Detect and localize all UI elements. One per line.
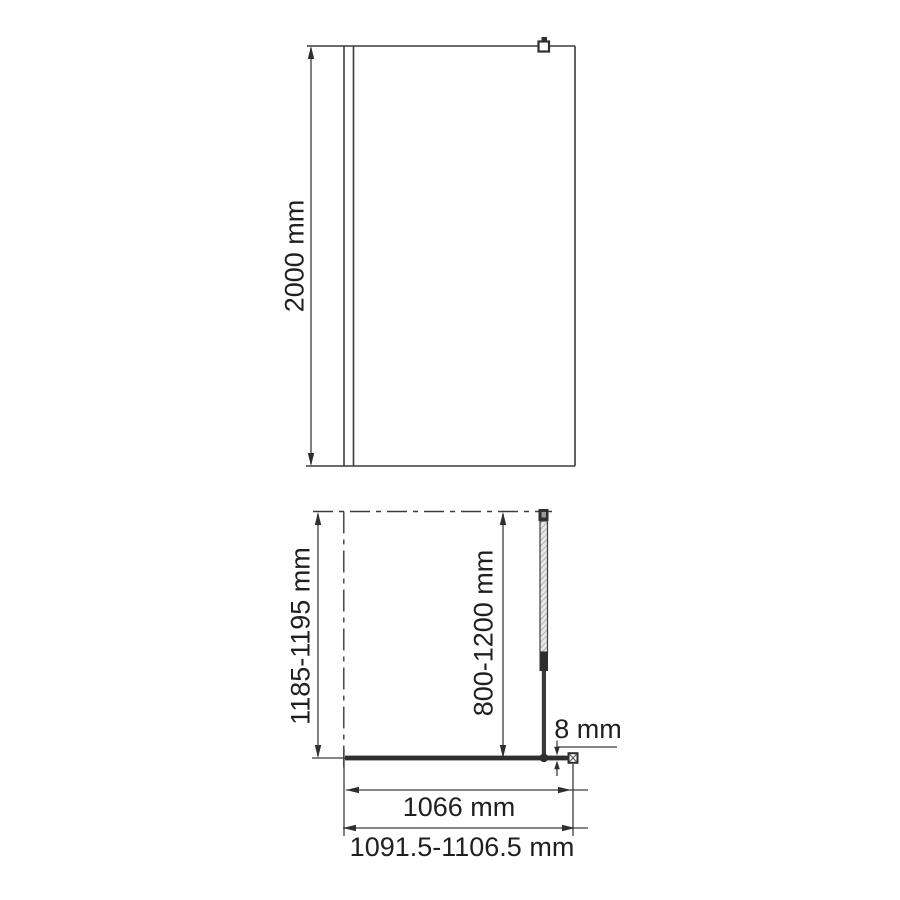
bar-clamp [540,652,549,671]
bar-outer-tube [540,521,548,652]
arrow-left-icon [343,825,356,831]
arrow-left-icon [346,787,359,793]
support-bar-plan [539,509,549,762]
bar-wall-bracket-inner [542,512,547,518]
arrow-up-icon [554,761,560,770]
overall-width-label: 1091.5-1106.5 mm [350,832,575,862]
support-bar-dimension: 800-1200 mm [468,512,506,758]
height-dimension: 2000 mm [279,46,314,466]
technical-drawing-canvas: 2000 mm [0,0,900,900]
arrow-up-icon [500,512,506,525]
support-bar-dimension-label: 800-1200 mm [468,550,498,717]
wall-profile-plan [569,753,578,763]
height-dimension-label: 2000 mm [279,200,309,313]
arrow-up-icon [308,46,314,59]
front-view: 2000 mm [279,37,575,466]
depth-dimension: 1185-1195 mm [285,512,321,758]
shower-screen-drawing: 2000 mm [0,0,900,900]
arrow-up-icon [315,512,321,525]
glass-thickness-label: 8 mm [554,714,622,744]
glass-width-label: 1066 mm [403,792,516,822]
overall-width-dimension: 1091.5-1106.5 mm [343,825,588,862]
glass-section [345,756,568,761]
arrow-down-icon [308,453,314,466]
wall-bracket-front [539,37,550,52]
top-view: 1185-1195 mm 800-1200 mm 8 mm [285,509,621,862]
bracket-body [539,42,550,52]
arrow-down-icon [315,745,321,758]
arrow-down-icon [554,747,560,756]
glass-panel-front [306,46,575,466]
arrow-right-icon [558,787,571,793]
bar-inner-tube [542,671,546,757]
glass-thickness-dimension: 8 mm [554,714,622,776]
glass-panel-plan [312,749,578,771]
glass-width-dimension: 1066 mm [346,787,588,822]
depth-dimension-label: 1185-1195 mm [285,547,315,725]
